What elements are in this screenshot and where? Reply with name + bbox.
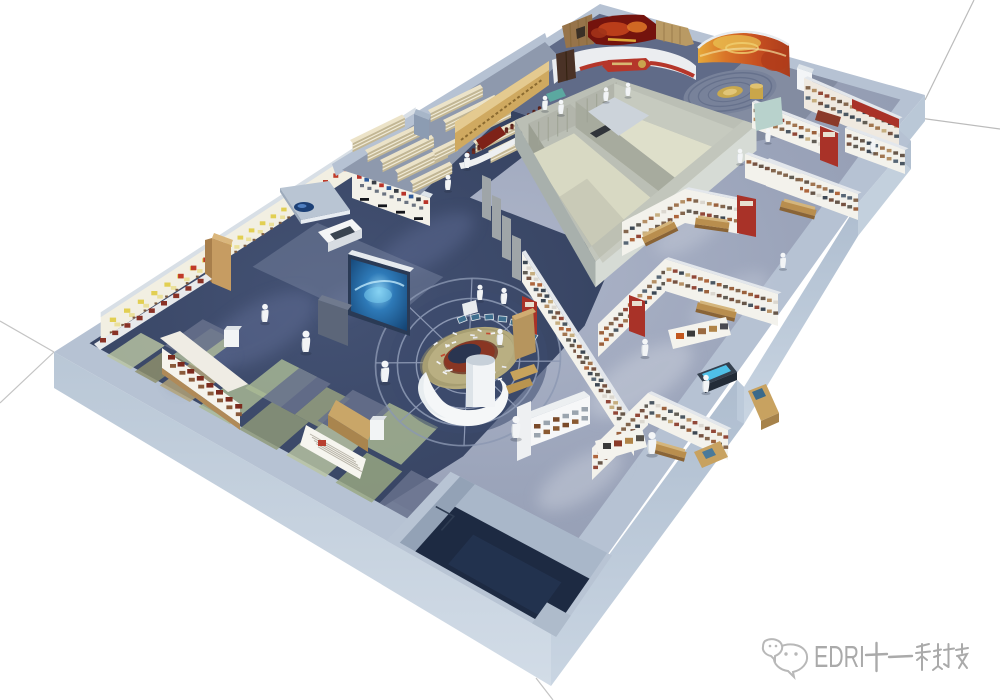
svg-text:EDRI: EDRI bbox=[814, 639, 865, 674]
